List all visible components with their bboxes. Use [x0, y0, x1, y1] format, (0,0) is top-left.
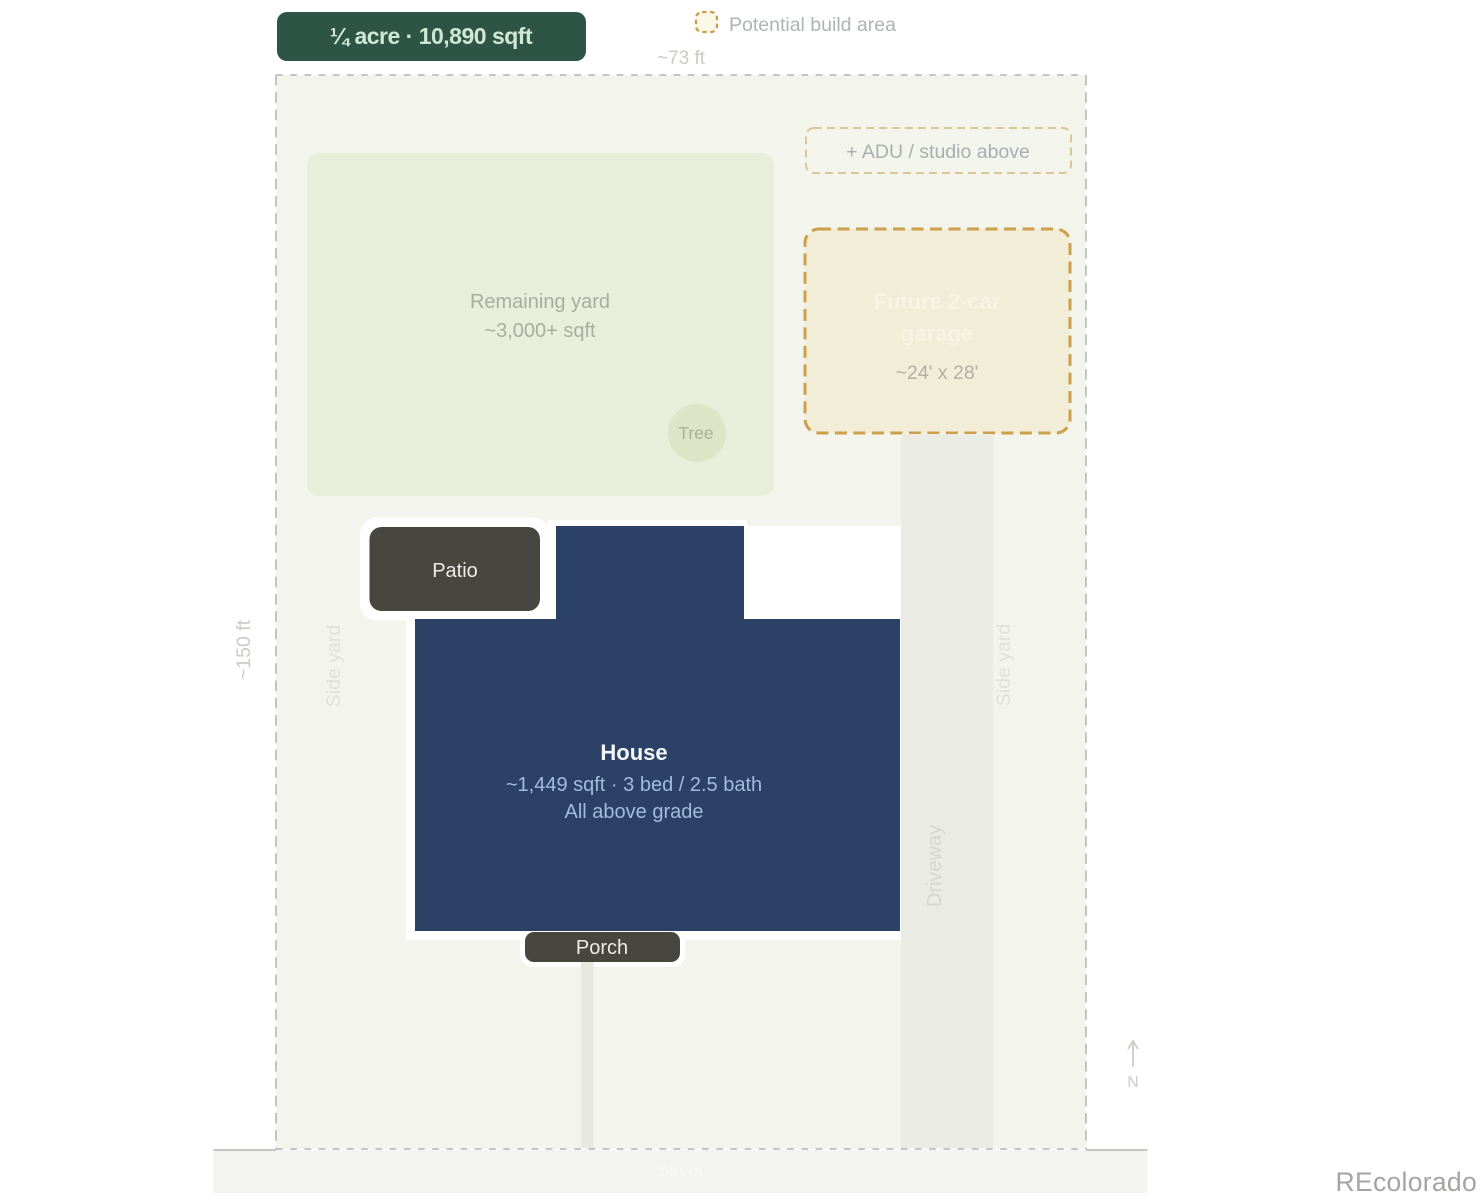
svg-text:All above grade: All above grade — [565, 801, 704, 823]
svg-text:Side yard: Side yard — [323, 625, 345, 707]
svg-text:Remaining yard: Remaining yard — [470, 291, 610, 313]
svg-text:N: N — [1127, 1074, 1138, 1091]
svg-text:~24' x 28': ~24' x 28' — [896, 362, 979, 384]
svg-text:Tree: Tree — [678, 423, 713, 443]
svg-text:~150 ft: ~150 ft — [233, 619, 255, 680]
svg-text:REcolorado: REcolorado — [1336, 1167, 1477, 1197]
svg-text:Patio: Patio — [432, 560, 478, 582]
svg-text:¼ acre · 10,890 sqft: ¼ acre · 10,890 sqft — [330, 23, 533, 49]
svg-text:Side yard: Side yard — [993, 624, 1015, 706]
svg-text:Street: Street — [657, 1161, 703, 1180]
svg-text:Potential build area: Potential build area — [729, 14, 896, 36]
svg-text:~73 ft: ~73 ft — [657, 48, 706, 69]
svg-text:~1,449 sqft · 3 bed / 2.5 bath: ~1,449 sqft · 3 bed / 2.5 bath — [506, 774, 762, 796]
svg-text:Driveway: Driveway — [924, 825, 946, 907]
svg-text:+ ADU / studio above: + ADU / studio above — [846, 141, 1030, 163]
svg-text:Porch: Porch — [576, 937, 628, 959]
svg-text:garage: garage — [901, 321, 973, 346]
svg-text:~3,000+ sqft: ~3,000+ sqft — [484, 320, 596, 342]
svg-text:Future 2-car: Future 2-car — [873, 289, 1001, 314]
svg-text:House: House — [600, 740, 667, 765]
